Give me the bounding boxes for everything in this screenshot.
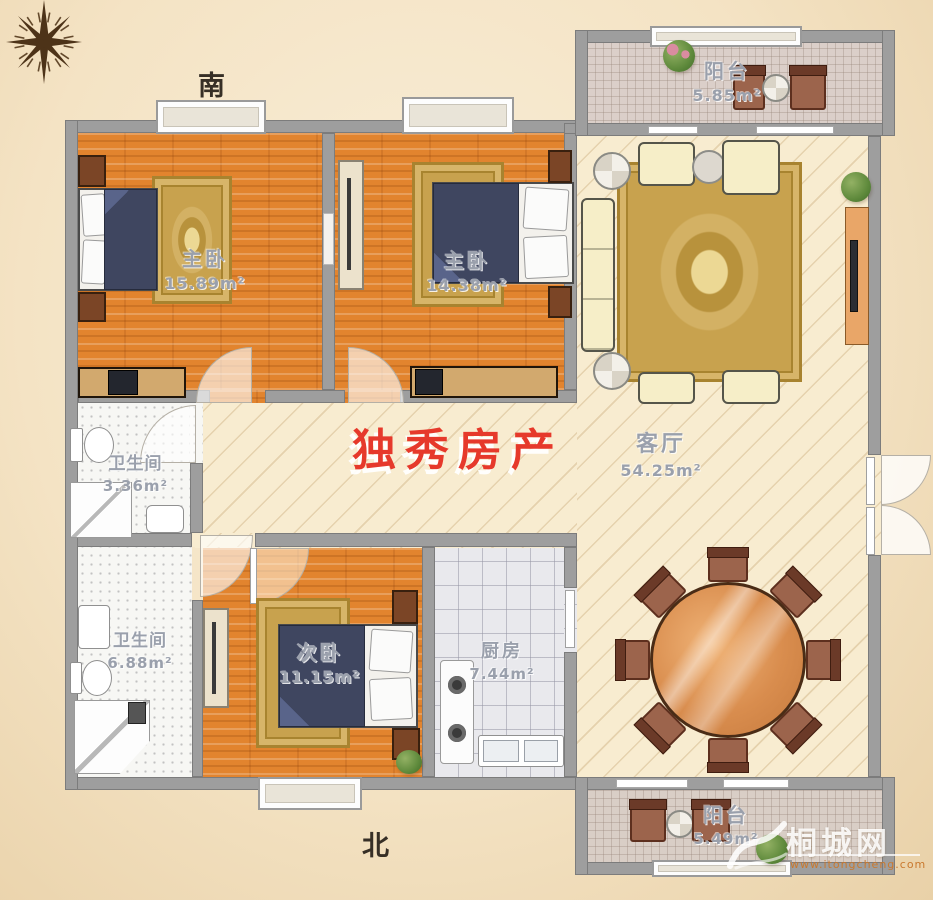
nightstand xyxy=(548,150,572,183)
stove-burner-icon xyxy=(448,724,466,742)
wall xyxy=(255,533,577,547)
dining-chair xyxy=(616,640,650,680)
site-logo-icon xyxy=(726,820,788,872)
room-label-bath1: 卫生间 3.36m² xyxy=(83,453,188,496)
window-strip xyxy=(756,126,834,134)
room-label-balcony-top: 阳台 5.85m² xyxy=(662,58,792,107)
armchair xyxy=(722,140,780,195)
room-name: 阳台 xyxy=(662,58,792,85)
wall xyxy=(882,30,895,136)
entry-door-arc-lower xyxy=(881,505,931,555)
room-area: 7.44m² xyxy=(444,664,560,684)
armchair xyxy=(638,372,695,404)
direction-north-label: 北 xyxy=(362,824,389,863)
room-label-kitchen: 厨房 7.44m² xyxy=(444,640,560,685)
room-label-living: 客厅 54.25m² xyxy=(596,430,726,481)
site-underline xyxy=(788,854,920,856)
sofa xyxy=(581,198,615,352)
site-url: www.itongcheng.com xyxy=(790,858,926,871)
window-strip xyxy=(616,779,688,788)
plant-icon xyxy=(841,172,871,202)
wall xyxy=(190,463,203,533)
wall xyxy=(575,30,588,136)
room-area: 14.38m² xyxy=(402,275,532,297)
room-name: 次卧 xyxy=(255,640,385,667)
tv-icon xyxy=(850,240,858,312)
wall xyxy=(868,555,881,777)
wall xyxy=(564,123,895,136)
room-name: 卫生间 xyxy=(83,453,188,476)
toilet-icon xyxy=(70,662,82,694)
balcony-chair xyxy=(790,66,826,110)
nightstand xyxy=(78,292,106,322)
window xyxy=(258,777,362,810)
direction-south-label: 南 xyxy=(198,64,225,103)
floor-plan: 南 北 xyxy=(0,0,933,900)
dining-chair xyxy=(708,738,748,772)
wall xyxy=(265,390,345,403)
wardrobe xyxy=(338,160,364,290)
window xyxy=(402,97,514,134)
shower-head-icon xyxy=(128,702,146,724)
room-area: 54.25m² xyxy=(596,460,726,482)
door-leaf-kitchen xyxy=(565,590,575,648)
door-leaf xyxy=(250,548,257,604)
site-watermark: 桐城网 www.itongcheng.com xyxy=(728,818,933,878)
site-name: 桐城网 xyxy=(786,818,891,863)
living-rug xyxy=(617,162,802,382)
wardrobe-handle xyxy=(212,622,216,694)
round-table-icon xyxy=(692,150,726,184)
dining-table xyxy=(650,582,806,738)
wall xyxy=(192,600,203,777)
room-name: 主卧 xyxy=(140,246,270,273)
room-label-bath2: 卫生间 6.88m² xyxy=(85,630,195,673)
toilet-icon xyxy=(70,428,83,462)
sink-basin xyxy=(483,740,519,762)
wall xyxy=(564,652,577,777)
wall xyxy=(422,547,435,777)
window xyxy=(156,100,266,134)
pillow xyxy=(523,187,570,232)
bathroom-sink xyxy=(146,505,184,533)
wall-recess xyxy=(323,213,334,265)
dining-chair xyxy=(806,640,840,680)
entry-door-leaf xyxy=(866,457,875,505)
room-label-bed3: 次卧 11.15m² xyxy=(255,640,385,689)
nightstand xyxy=(392,590,418,624)
sink-basin xyxy=(524,740,558,762)
window-strip xyxy=(723,779,789,788)
room-name: 卫生间 xyxy=(85,630,195,653)
wall xyxy=(575,777,588,875)
armchair xyxy=(722,370,780,404)
room-name: 厨房 xyxy=(444,640,560,664)
nightstand xyxy=(548,286,572,318)
dining-chair xyxy=(708,548,748,582)
computer-icon xyxy=(108,370,138,395)
wardrobe xyxy=(203,608,229,708)
entry-door-arc-upper xyxy=(881,455,931,505)
wardrobe-handle xyxy=(347,178,351,270)
room-area: 3.36m² xyxy=(83,476,188,496)
wall xyxy=(564,547,577,588)
agency-watermark: 独秀房产 xyxy=(352,414,564,478)
room-label-master1: 主卧 15.89m² xyxy=(140,246,270,295)
room-area: 6.88m² xyxy=(85,653,195,673)
room-name: 主卧 xyxy=(402,248,532,275)
nightstand xyxy=(78,155,106,187)
room-area: 11.15m² xyxy=(255,667,385,689)
room-area: 5.85m² xyxy=(662,85,792,107)
room-label-master2: 主卧 14.38m² xyxy=(402,248,532,297)
room-area: 15.89m² xyxy=(140,273,270,295)
armchair xyxy=(638,142,695,186)
window-strip xyxy=(648,126,698,134)
side-table-icon xyxy=(593,352,631,390)
entry-door-leaf xyxy=(866,507,875,555)
plant-icon xyxy=(396,750,422,774)
compass-icon xyxy=(4,0,84,84)
computer-icon xyxy=(415,369,443,395)
room-name: 客厅 xyxy=(596,430,726,460)
side-table-icon xyxy=(593,152,631,190)
